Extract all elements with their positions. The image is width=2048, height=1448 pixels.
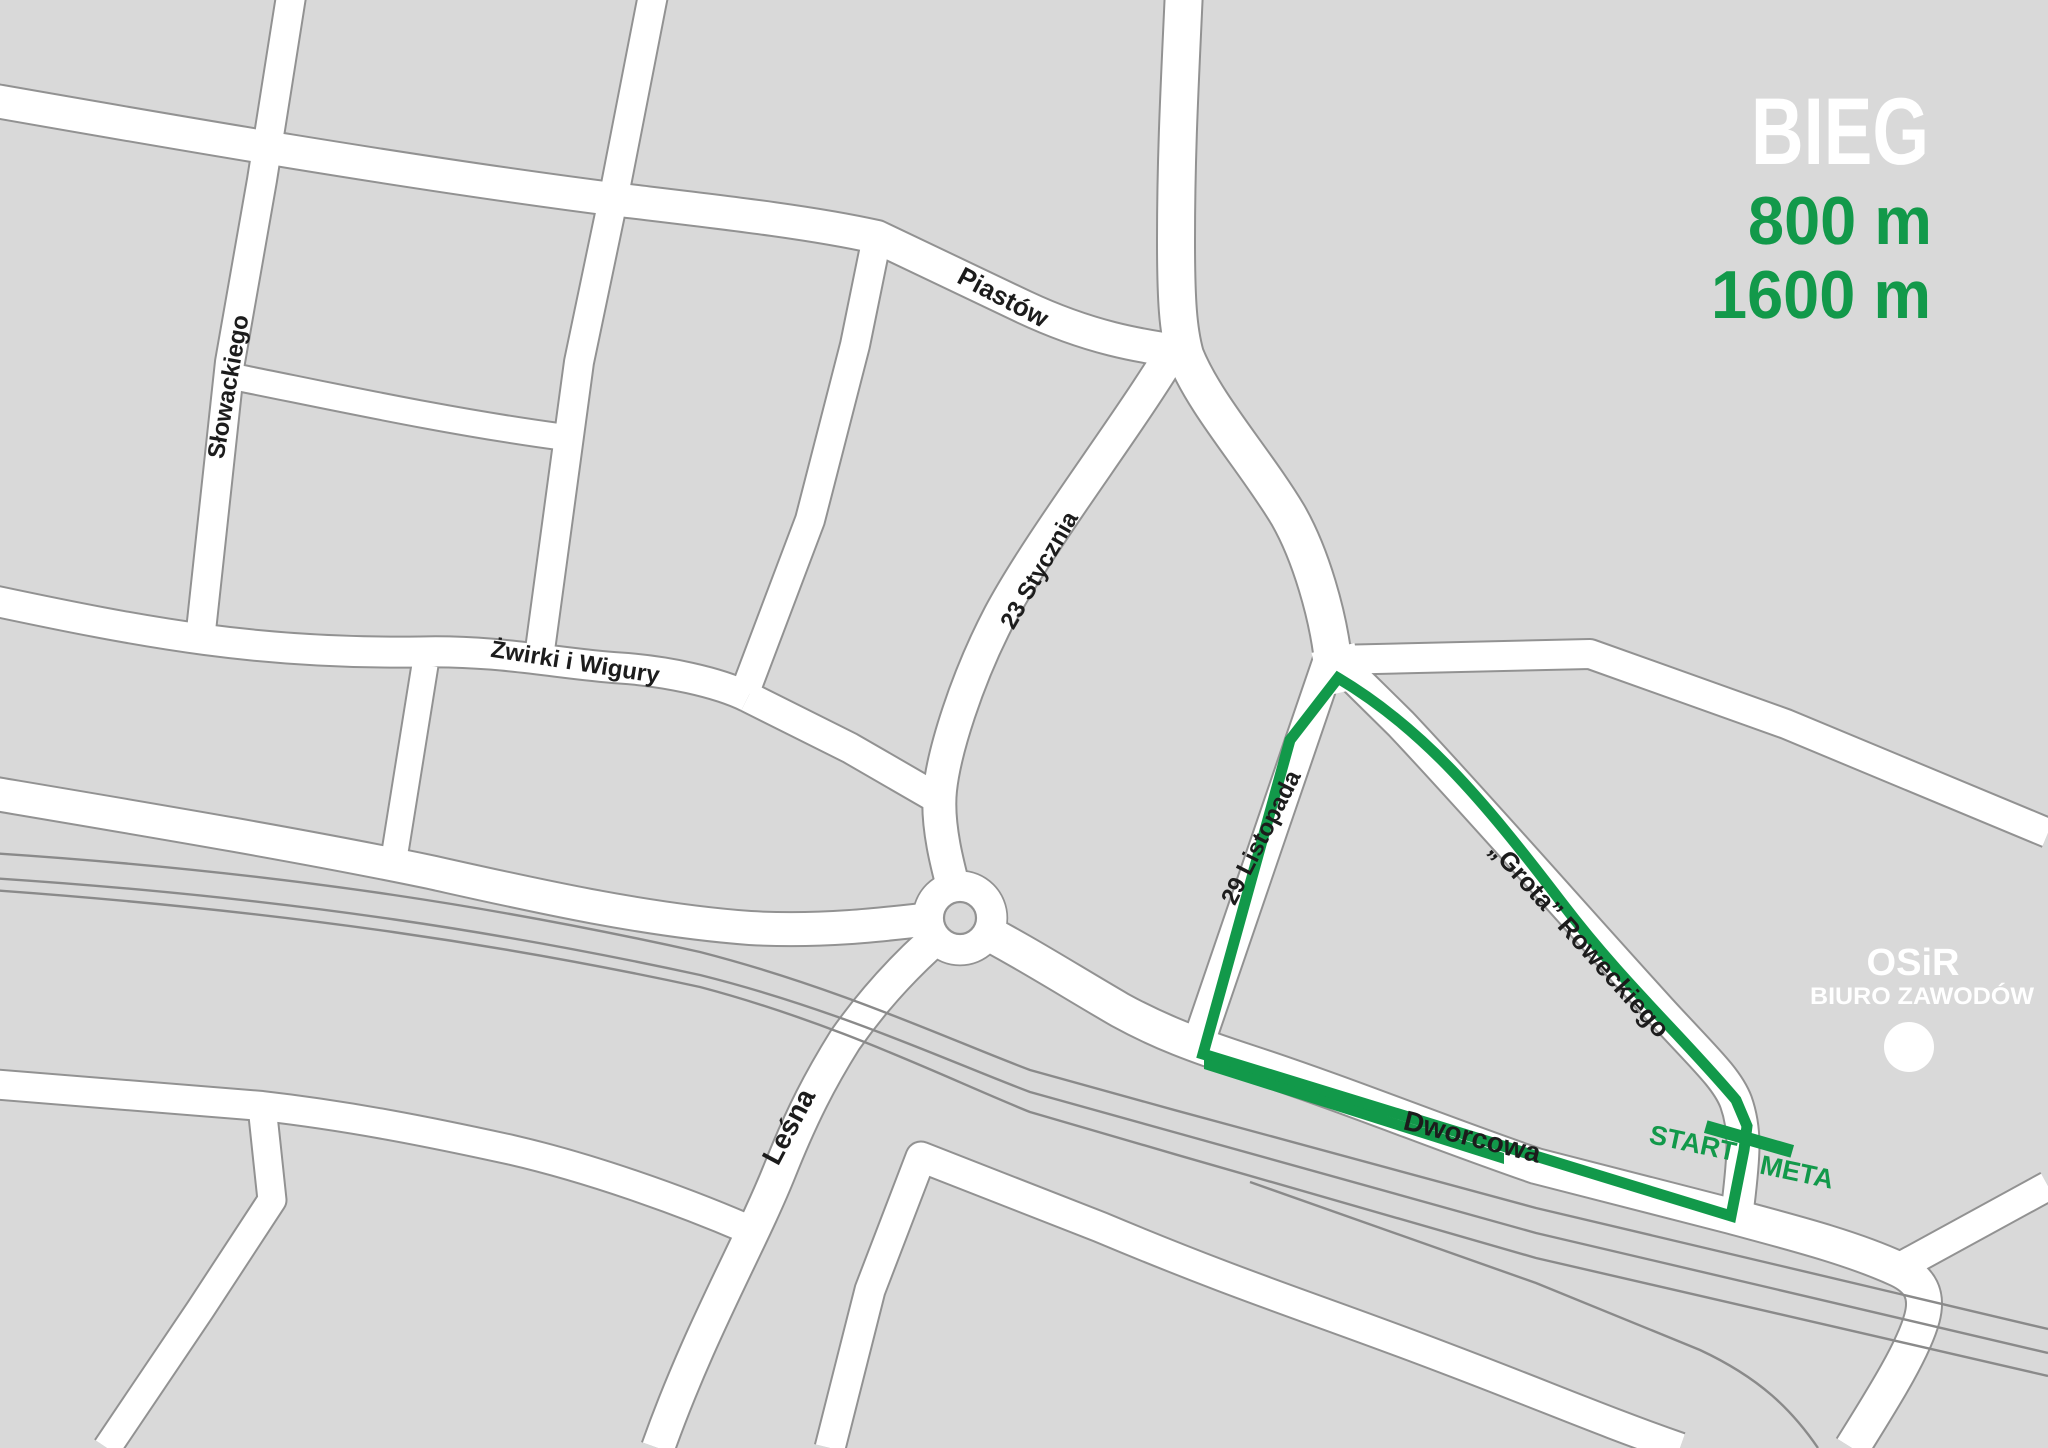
- svg-text:1600 m: 1600 m: [1711, 257, 1931, 333]
- svg-text:BIURO ZAWODÓW: BIURO ZAWODÓW: [1810, 982, 2034, 1010]
- svg-text:800 m: 800 m: [1748, 183, 1932, 259]
- svg-text:OSiR: OSiR: [1867, 942, 1960, 984]
- svg-text:BIEG: BIEG: [1751, 79, 1929, 185]
